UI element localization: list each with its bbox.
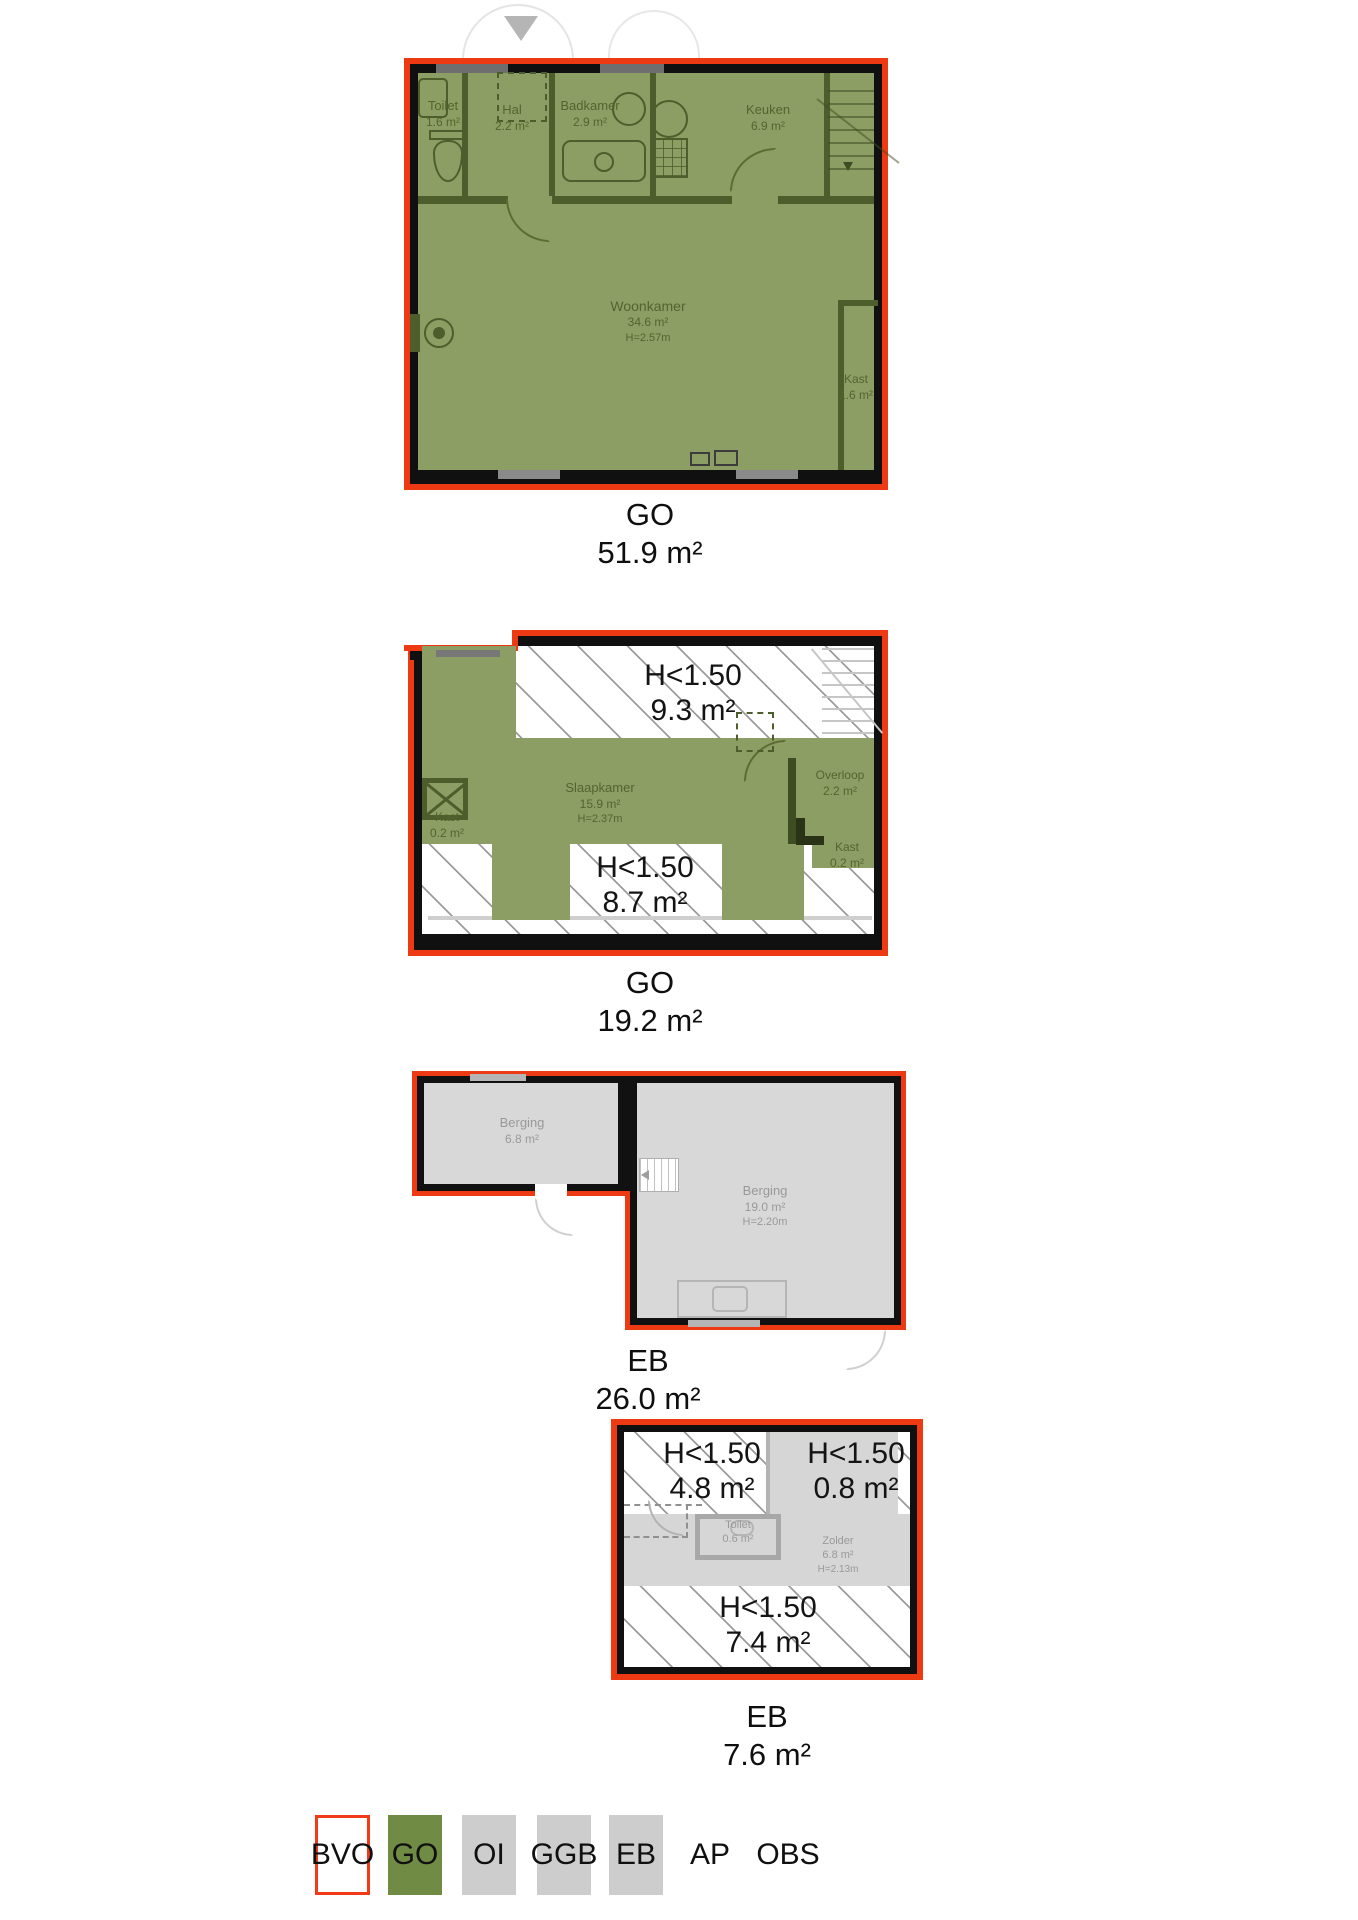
h150-label-top: H<1.509.3 m² (556, 658, 830, 728)
room-label-kast-left: Kast0.2 m² (418, 810, 476, 841)
room-label-slaapkamer: Slaapkamer15.9 m²H=2.37m (518, 780, 682, 827)
legend-label: GGB (531, 1838, 598, 1872)
stairs-arrow-icon (641, 1170, 649, 1180)
room-label-hal: Hal2.2 m² (488, 102, 536, 134)
wall-nub (410, 314, 420, 352)
washbasin-icon (594, 152, 614, 172)
door-swing-arc (846, 1330, 886, 1370)
window (600, 64, 664, 73)
wall (788, 758, 796, 844)
window (688, 1320, 760, 1327)
h150-label-bottom4: H<1.507.4 m² (698, 1590, 838, 1660)
window-sill (428, 916, 492, 920)
legend-item-eb: EB (609, 1815, 663, 1895)
h150-label-topleft: H<1.504.8 m² (642, 1436, 782, 1506)
plan2-notch (400, 624, 518, 645)
legend-item-oi: OI (462, 1815, 516, 1895)
legend-label: GO (392, 1838, 439, 1872)
round-fixture-dot (433, 327, 445, 339)
dashed-line (686, 1504, 688, 1538)
legend-item-bvo: BVO (315, 1815, 370, 1895)
plan3-junction-wall (618, 1076, 639, 1191)
floorplan-sheet: Toilet1.6 m² Hal2.2 m² Badkamer2.9 m² Ke… (0, 0, 1358, 1920)
legend-item-ggb: GGB (537, 1815, 591, 1895)
entrance-arc-wrapper (450, 0, 710, 58)
window-sill (804, 916, 872, 920)
legend-item-obs: OBS (752, 1815, 824, 1895)
room-label-badkamer: Badkamer2.9 m² (548, 98, 632, 130)
room-label-kast-right: Kast0.2 m² (818, 840, 876, 871)
window (470, 1074, 526, 1081)
room-label-berging-large: Berging19.0 m²H=2.20m (703, 1183, 827, 1230)
wall (552, 196, 732, 204)
vent-glyph (690, 452, 710, 466)
room-label-kast: Kast1.6 m² (830, 372, 882, 403)
dashed-line (624, 1536, 688, 1538)
door-swing-arc (608, 10, 700, 58)
toilet-icon (429, 130, 467, 140)
door-gap (535, 1184, 567, 1198)
room-label-toilet4: Toilet0.6 m² (710, 1518, 766, 1547)
h150-label-bottom: H<1.508.7 m² (508, 850, 782, 920)
room-label-overloop: Overloop2.2 m² (798, 768, 882, 799)
wall-stub (796, 818, 805, 845)
wall (549, 73, 555, 196)
entrance-arrow-icon (504, 16, 538, 41)
plan1-caption: GO51.9 m² (570, 496, 730, 572)
legend-label: OI (473, 1838, 505, 1872)
legend-label: BVO (311, 1838, 374, 1872)
plan2-caption: GO19.2 m² (570, 964, 730, 1040)
room-label-keuken: Keuken6.9 m² (726, 102, 810, 134)
washbasin-icon (650, 100, 688, 138)
plan3-caption: EB26.0 m² (568, 1342, 728, 1418)
room-label-zolder: Zolder6.8 m²H=2.13m (798, 1534, 878, 1576)
legend-label: AP (690, 1838, 730, 1872)
legend-item-ap: AP (677, 1815, 743, 1895)
door-swing-arc (535, 1198, 573, 1236)
wall (838, 300, 878, 306)
room-label-woonkamer: Woonkamer34.6 m²H=2.57m (558, 297, 738, 345)
vent-glyph (714, 450, 738, 466)
wall (418, 196, 508, 204)
window (736, 470, 798, 479)
dormer-fixture-inner (712, 1286, 748, 1312)
wall (778, 196, 874, 204)
legend-item-go: GO (388, 1815, 442, 1895)
window (498, 470, 560, 479)
room-label-berging-small: Berging6.8 m² (462, 1115, 582, 1147)
legend-label: OBS (756, 1838, 819, 1872)
stove-icon (652, 138, 688, 178)
room-label-toilet: Toilet1.6 m² (418, 98, 468, 130)
legend-label: EB (616, 1838, 656, 1872)
plan4-caption: EB7.6 m² (687, 1698, 847, 1774)
stairs-arrow-icon (843, 162, 853, 171)
h150-label-topright: H<1.500.8 m² (786, 1436, 926, 1506)
window (436, 650, 500, 657)
